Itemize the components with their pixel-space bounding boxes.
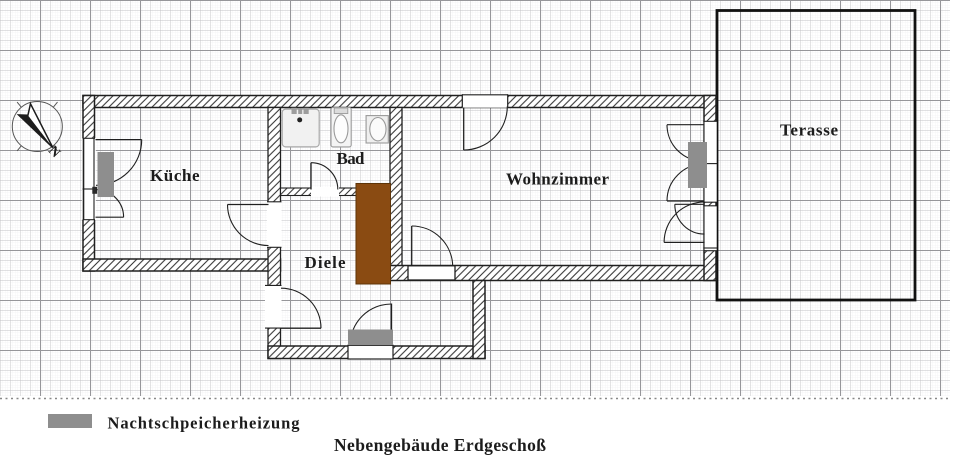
svg-text:Wohnzimmer: Wohnzimmer	[506, 170, 609, 189]
svg-text:Bad: Bad	[337, 149, 366, 168]
svg-text:Diele: Diele	[305, 253, 346, 272]
svg-text:Terasse: Terasse	[780, 121, 838, 140]
svg-text:Nebengebäude Erdgeschoß: Nebengebäude Erdgeschoß	[334, 435, 546, 455]
svg-text:Küche: Küche	[150, 166, 200, 185]
svg-text:Nachtschpeicherheizung: Nachtschpeicherheizung	[108, 414, 301, 433]
